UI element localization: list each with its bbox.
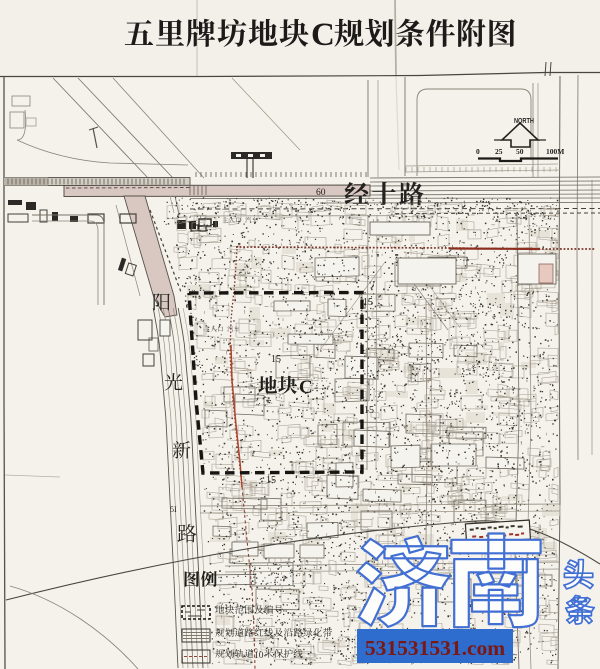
svg-text:60: 60	[316, 188, 326, 198]
svg-text:15: 15	[271, 354, 281, 365]
svg-text:50: 50	[516, 147, 524, 156]
svg-text:NORTH: NORTH	[514, 118, 534, 125]
svg-text:15: 15	[363, 297, 373, 308]
svg-text:531531531.com: 531531531.com	[365, 636, 505, 660]
svg-text:C: C	[299, 377, 313, 398]
svg-text:100M: 100M	[546, 147, 564, 156]
svg-text:15: 15	[266, 475, 276, 486]
svg-text:10: 10	[254, 651, 264, 661]
svg-text:25: 25	[495, 147, 503, 156]
svg-text:C: C	[311, 17, 335, 53]
svg-text:0: 0	[476, 147, 480, 156]
svg-text:15: 15	[364, 405, 374, 416]
svg-text:5I: 5I	[170, 505, 177, 514]
